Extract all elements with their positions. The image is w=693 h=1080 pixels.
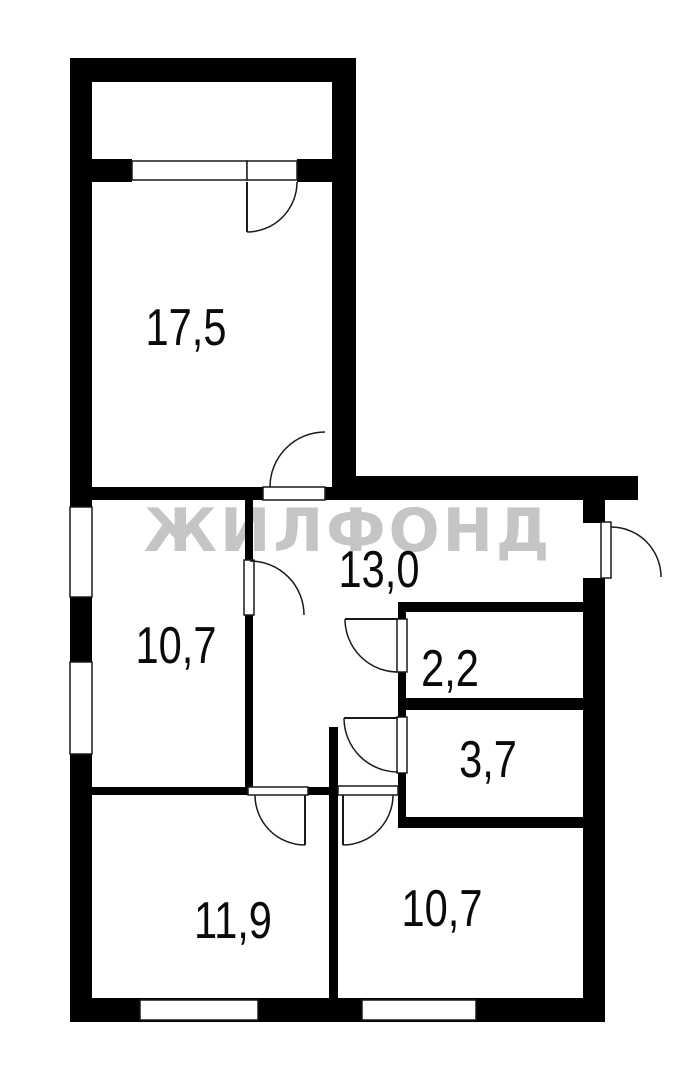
room-label-room-10-7-left: 10,7	[136, 620, 217, 672]
room-label-room-2-2: 2,2	[421, 643, 479, 695]
door-17-5-swing-arc	[270, 432, 325, 487]
sill-2-2-door	[397, 619, 407, 672]
window-balcony	[132, 161, 247, 180]
floor-plan-drawing	[0, 0, 693, 1080]
room-label-room-10-7-right: 10,7	[402, 883, 483, 935]
door-3-7-swing-arc	[344, 718, 398, 772]
outer-wall-right-upper	[583, 500, 605, 523]
sill-11-9-door	[248, 787, 308, 795]
entrance-door-swing-arc	[611, 527, 661, 577]
wall-hall-2-2-a	[398, 612, 406, 619]
sill-balcony-door	[247, 161, 297, 180]
wall-hall-2-2-b	[398, 672, 406, 717]
sill-entrance-door	[601, 522, 611, 578]
wall-10-7-left-upper	[245, 500, 253, 560]
door-10-7-right-swing-arc	[343, 795, 393, 845]
wall-11-9-top-left	[92, 787, 248, 795]
balcony-front-wall-left	[70, 159, 132, 182]
wall-11-9-10-7-divider	[329, 727, 338, 1022]
wall-2-2-top	[398, 602, 583, 612]
outer-wall-hall-top	[332, 476, 638, 500]
door-11-9-swing-arc	[255, 795, 305, 845]
room-label-room-3-7: 3,7	[459, 734, 517, 786]
outer-wall-right-lower	[583, 578, 605, 1022]
wall-3-7-bottom	[398, 817, 583, 828]
balcony-front-wall-right	[297, 159, 356, 182]
outer-wall-right-17-5	[332, 58, 356, 500]
balcony-door-swing-arc	[247, 182, 297, 232]
window-10-7-left-upper	[70, 507, 92, 597]
wall-17-5-bottom-left	[92, 487, 263, 500]
wall-17-5-bottom-right	[325, 487, 332, 500]
room-label-room-17-5: 17,5	[146, 302, 227, 354]
window-10-7-right-bottom	[362, 1000, 476, 1020]
sill-3-7-door	[397, 717, 407, 773]
door-2-2-swing-arc	[345, 619, 398, 672]
sill-10-7-right-door	[338, 786, 398, 795]
sill-10-7-left-door	[244, 560, 254, 615]
outer-wall-top-balcony	[70, 58, 356, 82]
sill-17-5-door	[263, 487, 325, 500]
door-10-7-left-swing-arc	[250, 561, 304, 615]
wall-2-2-3-7-divider	[406, 698, 583, 710]
floor-plan: ЖИЛФОНД 17,513,010,72,23,711,910,7	[0, 0, 693, 1080]
wall-10-7-left-lower	[245, 615, 253, 795]
room-label-room-11-9: 11,9	[194, 895, 272, 947]
wall-11-9-top-right	[308, 787, 329, 795]
room-label-hall-13-0: 13,0	[339, 544, 420, 596]
window-10-7-left-lower	[70, 662, 92, 754]
window-11-9-bottom	[140, 1000, 258, 1020]
